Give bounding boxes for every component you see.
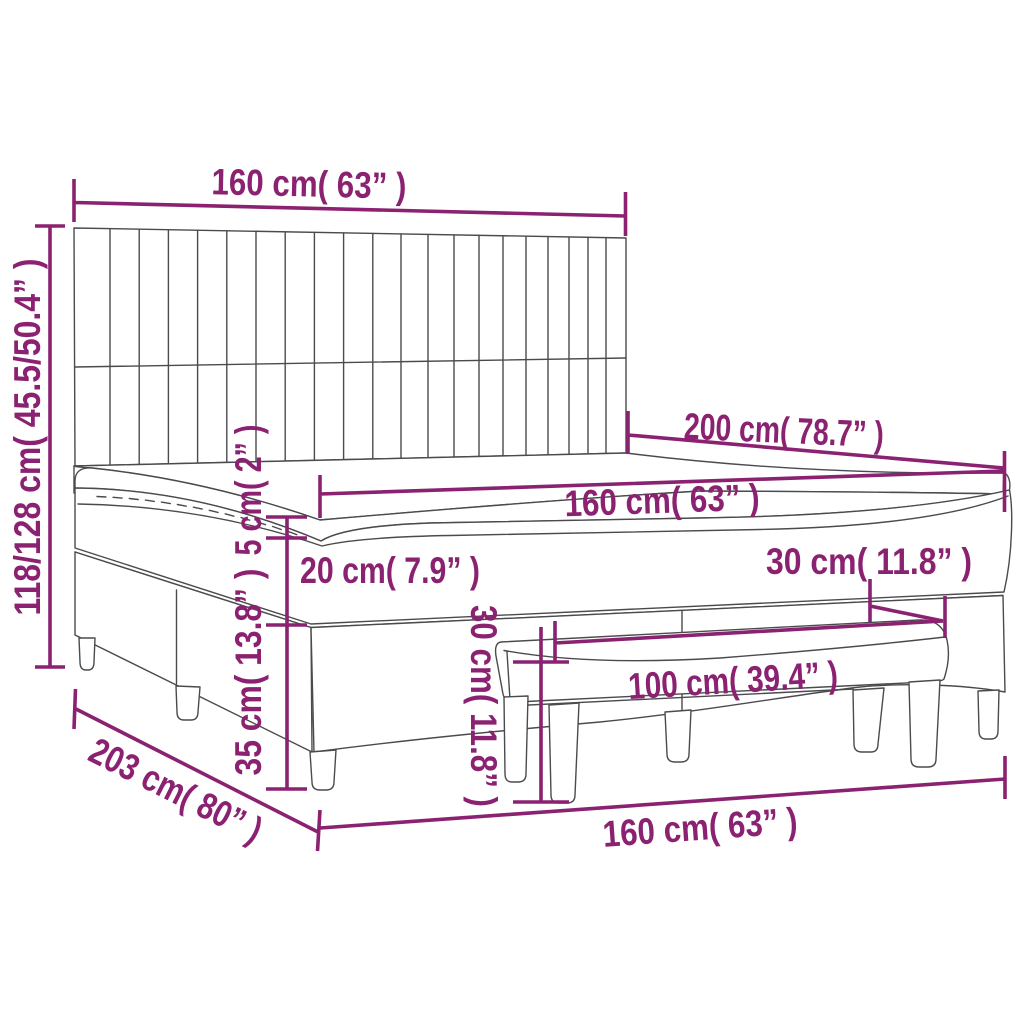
svg-text:5 cm( 2” ): 5 cm( 2” ) xyxy=(228,425,269,556)
svg-text:118/128 cm( 45.5/50.4” ): 118/128 cm( 45.5/50.4” ) xyxy=(7,259,48,616)
svg-text:30 cm( 11.8” ): 30 cm( 11.8” ) xyxy=(463,605,504,807)
svg-text:200 cm( 78.7” ): 200 cm( 78.7” ) xyxy=(683,406,885,456)
svg-text:160 cm( 63” ): 160 cm( 63” ) xyxy=(211,161,407,206)
svg-text:20 cm( 7.9” ): 20 cm( 7.9” ) xyxy=(300,550,480,591)
svg-text:30 cm( 11.8” ): 30 cm( 11.8” ) xyxy=(766,541,972,582)
svg-text:160 cm( 63” ): 160 cm( 63” ) xyxy=(564,477,760,525)
svg-text:35 cm( 13.8” ): 35 cm( 13.8” ) xyxy=(228,569,269,776)
